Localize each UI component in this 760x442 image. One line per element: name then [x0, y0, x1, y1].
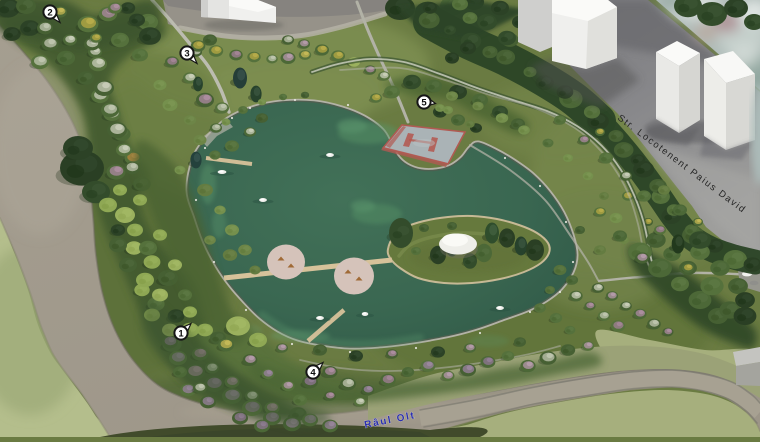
- svg-text:3: 3: [184, 48, 189, 59]
- svg-text:2: 2: [47, 7, 52, 18]
- svg-text:1: 1: [178, 328, 184, 339]
- svg-text:4: 4: [310, 367, 316, 378]
- svg-text:5: 5: [421, 97, 427, 108]
